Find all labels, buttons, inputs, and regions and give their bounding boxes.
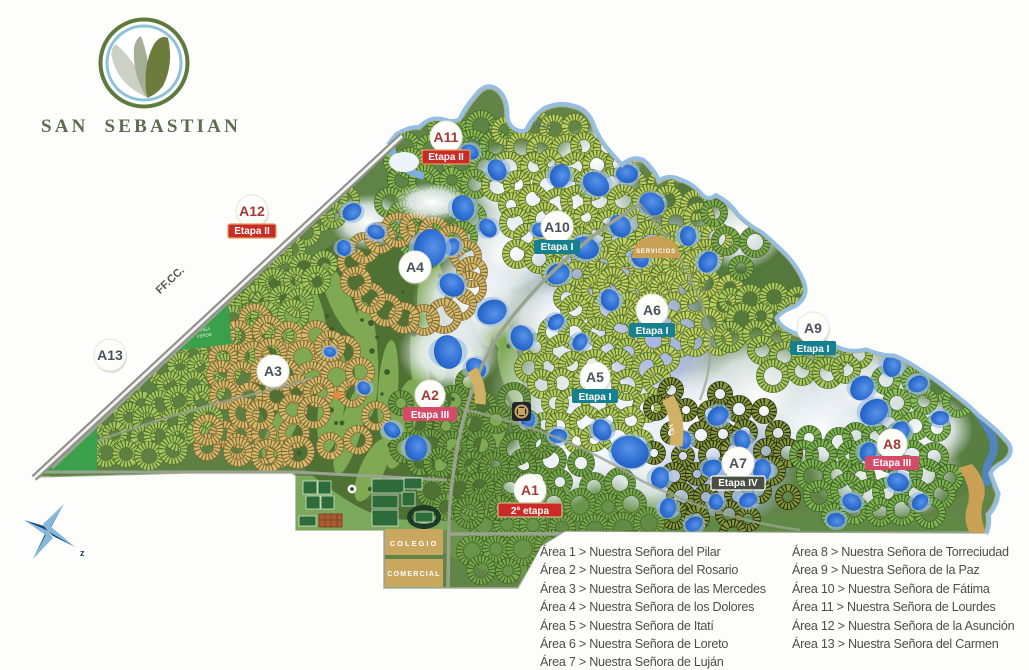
- svg-text:A6: A6: [643, 302, 661, 318]
- svg-text:2ª etapa: 2ª etapa: [511, 506, 550, 517]
- svg-text:Etapa I: Etapa I: [579, 392, 612, 403]
- svg-text:A9: A9: [804, 320, 822, 336]
- svg-text:A8: A8: [883, 436, 901, 452]
- svg-text:z: z: [80, 548, 85, 558]
- svg-text:A3: A3: [264, 363, 282, 379]
- svg-text:A11: A11: [434, 129, 459, 145]
- svg-text:A13: A13: [97, 347, 123, 363]
- svg-text:COMERCIAL: COMERCIAL: [387, 571, 440, 578]
- svg-text:A10: A10: [544, 219, 570, 235]
- svg-text:A7: A7: [729, 455, 747, 471]
- svg-text:A2: A2: [421, 387, 439, 403]
- svg-text:Etapa II: Etapa II: [428, 152, 464, 163]
- svg-text:Etapa II: Etapa II: [234, 226, 270, 237]
- svg-text:Etapa I: Etapa I: [797, 344, 830, 355]
- svg-text:A12: A12: [239, 203, 265, 219]
- svg-text:Etapa IV: Etapa IV: [718, 478, 758, 489]
- svg-text:Etapa III: Etapa III: [411, 410, 450, 421]
- svg-text:FF.CC.: FF.CC.: [154, 264, 187, 296]
- svg-text:COLEGIO: COLEGIO: [390, 539, 439, 548]
- svg-text:SERVICIOS: SERVICIOS: [636, 249, 676, 255]
- svg-text:A5: A5: [586, 369, 604, 385]
- svg-text:Etapa I: Etapa I: [541, 242, 574, 253]
- svg-text:Etapa I: Etapa I: [636, 326, 669, 337]
- svg-text:A1: A1: [521, 482, 539, 498]
- svg-text:Etapa III: Etapa III: [873, 458, 912, 469]
- svg-text:A4: A4: [406, 259, 424, 275]
